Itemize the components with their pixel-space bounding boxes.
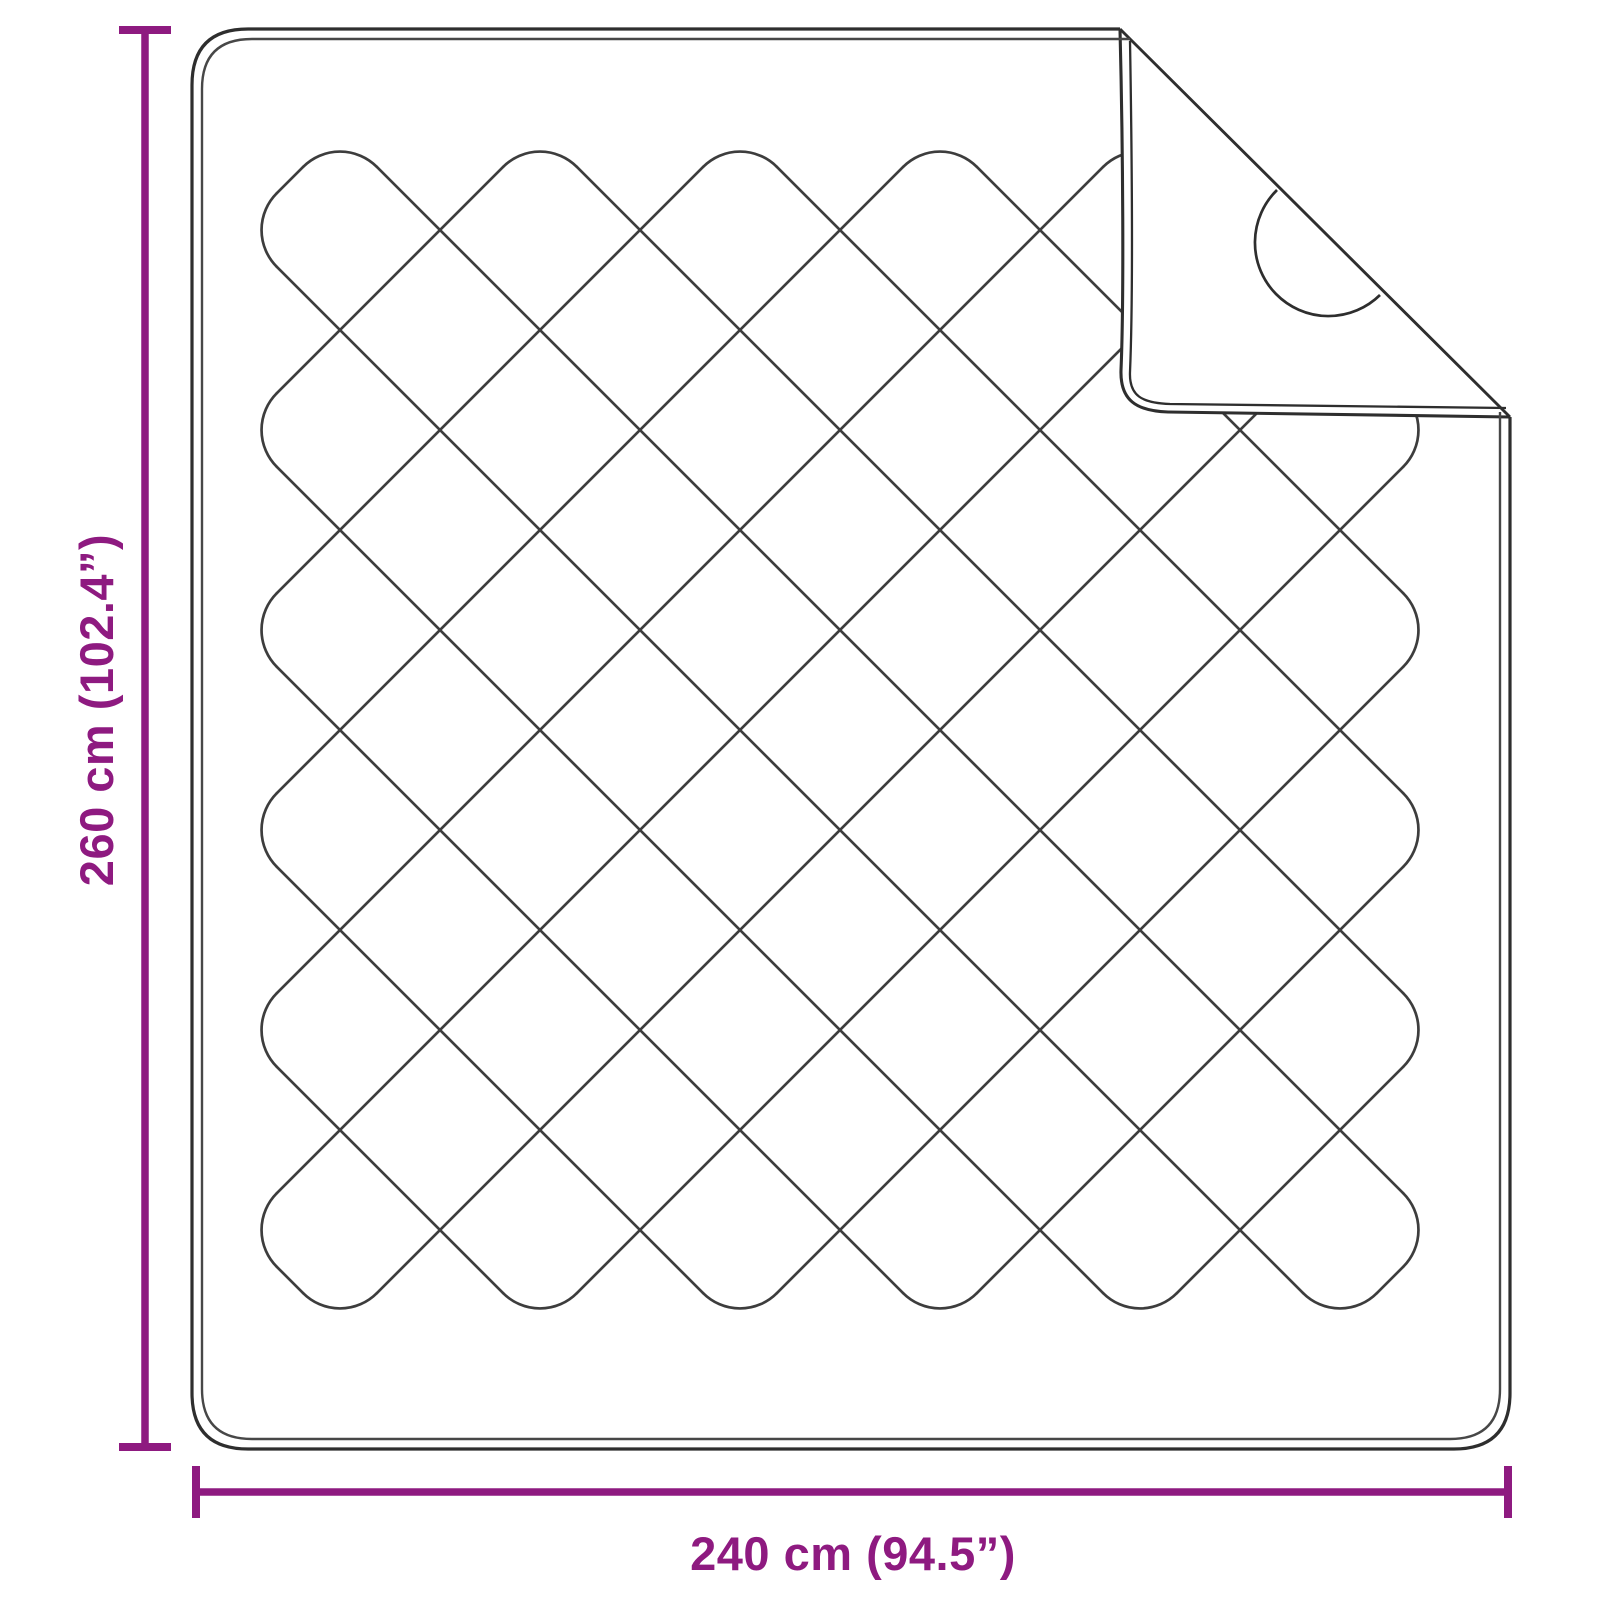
height-dimension: [119, 30, 171, 1447]
width-dimension-label: 240 cm (94.5”): [690, 1527, 1016, 1580]
height-dimension-label: 260 cm (102.4”): [70, 534, 123, 886]
width-dimension: [196, 1466, 1508, 1518]
blanket-dimension-diagram: 260 cm (102.4”) 240 cm (94.5”): [0, 0, 1600, 1600]
diagram-canvas: 260 cm (102.4”) 240 cm (94.5”): [0, 0, 1600, 1600]
